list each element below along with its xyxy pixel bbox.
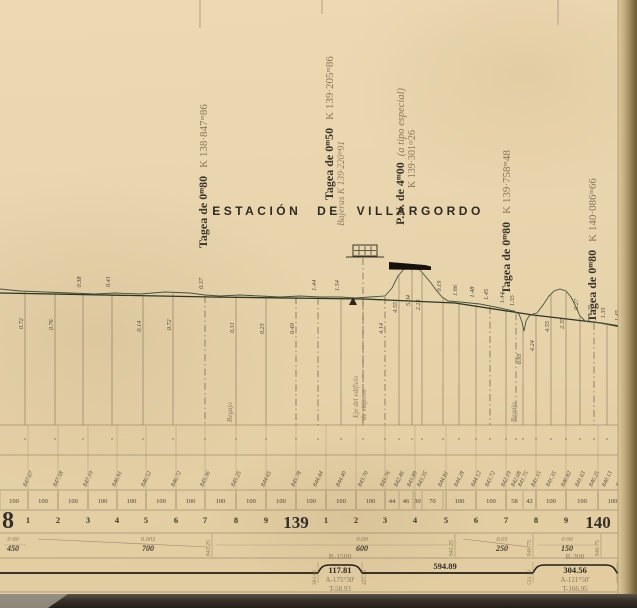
hectometer-number: 9 [264, 515, 268, 525]
hectometer-number: 7 [504, 515, 509, 525]
survey-dot [550, 438, 552, 440]
kilometer-number: 139 [283, 513, 309, 532]
hectometer-number: 2 [354, 515, 358, 525]
ordinate-value: 0.38 [76, 276, 83, 288]
ordinate-value: 0.41 [105, 276, 112, 287]
elevation-value: 847.58 [52, 470, 66, 488]
survey-dot [265, 438, 267, 440]
ordinate-value: 1.54 [334, 280, 341, 291]
elevation-value: 844.44 [312, 470, 326, 488]
scanned-profile-sheet: 0.720.760.380.410.140.720.370.310.250.40… [0, 0, 637, 608]
survey-dot [317, 438, 319, 440]
paper-edge-right [618, 0, 637, 608]
ordinate-value: 4.55 [392, 302, 399, 313]
kilometer-number: 8 [2, 508, 14, 534]
survey-dot [593, 438, 595, 440]
elevation-value: 844.81 [437, 470, 451, 488]
station-axis-label: Eje del edificio [352, 375, 360, 419]
survey-dot [24, 438, 26, 440]
hectometer-number: 8 [234, 515, 238, 525]
gradient-rate-value: 0.00 [356, 536, 368, 543]
hectometer-number: 3 [86, 515, 90, 525]
elevation-value: 843.70 [357, 470, 371, 488]
survey-dot [515, 438, 517, 440]
distance-value: 100 [9, 498, 19, 505]
regajo-label: Regajo [226, 402, 234, 423]
survey-dot [82, 438, 84, 440]
distance-value: 100 [455, 498, 465, 505]
gradient-rate-value: 0 00 [7, 536, 19, 543]
station-title: ESTACIÓN DE VILLARGORDO [212, 203, 484, 218]
ordinate-value: 4.14 [378, 323, 385, 334]
survey-dot [421, 438, 423, 440]
survey-dot [398, 438, 400, 440]
ordinate-value: 0.14 [136, 321, 143, 332]
elevation-value: 844.65 [260, 470, 274, 488]
tagea-label: Tagea de 0ᵐ50K 139·205ᵐ86 [322, 56, 336, 200]
tangent-pk-value: 533.12 [527, 570, 533, 585]
elevation-value: 845.78 [290, 470, 304, 488]
distance-value: 100 [577, 498, 587, 505]
gradient-break-value: 843.25 [449, 540, 455, 556]
elevation-value: 843.76 [379, 470, 393, 488]
distance-value: 42 [526, 498, 533, 505]
gradient-slope-line [38, 539, 208, 547]
elevation-value: 844.40 [335, 470, 349, 488]
regajo-label: Regajo [510, 402, 518, 423]
hectometer-number: 4 [115, 515, 120, 525]
survey-dot [579, 438, 581, 440]
distance-value: 100 [186, 498, 196, 505]
distance-value: 70 [429, 498, 436, 505]
survey-dot [505, 438, 507, 440]
hectometer-number: 3 [383, 515, 387, 525]
curve-angle-label: A-175°30' [326, 576, 355, 584]
elevation-value: 841.15 [530, 470, 544, 488]
distance-value: 100 [38, 498, 48, 505]
longitudinal-profile-drawing: 0.720.760.380.410.140.720.370.310.250.40… [0, 0, 637, 608]
survey-dot [384, 438, 386, 440]
ordinate-value: 4.55 [544, 321, 551, 332]
elevation-value: 846.91 [111, 470, 125, 488]
curve-angle-label: A-121°50' [561, 576, 590, 584]
distance-value: 100 [306, 498, 316, 505]
distance-value: 100 [127, 498, 137, 505]
structure-bar [389, 262, 431, 270]
ordinate-value: 1.48 [469, 286, 476, 298]
ordinate-value: 2.35 [559, 318, 566, 329]
ordinate-value: 0.37 [198, 277, 205, 289]
elevation-value: 847.07 [22, 469, 36, 488]
elevation-value: 840.82 [560, 470, 574, 488]
curve-radius-label: R-1500 [329, 552, 352, 561]
curve-length-label: 304.56 [563, 565, 586, 575]
elevation-value: 844.28 [453, 470, 467, 488]
elevation-value: 846.72 [170, 470, 184, 488]
terrain-line [0, 268, 637, 331]
elevation-value: 846.52 [140, 470, 154, 488]
elevation-value: 841.63 [574, 470, 588, 488]
tagea-label: Tagea de 0ᵐ80K 140·086ᵐ66 [585, 178, 599, 322]
gradient-rate-value: 0.003 [141, 536, 156, 543]
tangent-pk-value: 421.43 [362, 570, 368, 585]
structure-note-label: Bajeras K 139·220ᵐ91 [337, 141, 347, 226]
hectometer-number: 4 [413, 515, 418, 525]
ordinate-value: 1.66 [452, 284, 459, 296]
curve-tangent-label: T-166.95 [562, 585, 588, 593]
ordinate-value: 0.76 [48, 319, 55, 331]
elevation-value: 845.25 [230, 470, 244, 488]
distance-value: 100 [366, 498, 376, 505]
elevation-value: 842.46 [393, 470, 407, 488]
bottom-edge-strip [0, 594, 637, 608]
gradient-length-value: 700 [142, 544, 154, 553]
survey-dot [458, 438, 460, 440]
hectometer-number: 5 [444, 515, 448, 525]
tangent-pk-value: 303.62 [312, 570, 318, 585]
curve-tangent-label: T-58.93 [329, 585, 351, 593]
elevation-value: 847.19 [82, 470, 96, 488]
elevation-value: 840.25 [588, 470, 602, 488]
survey-dot [235, 438, 237, 440]
ordinate-value: 1.44 [311, 280, 318, 291]
hectometer-number: 2 [56, 515, 60, 525]
distance-value: 100 [98, 498, 108, 505]
distance-value: 100 [276, 498, 286, 505]
pn-label: P.N. de 4ᵐ00(a tipo especial) [393, 87, 407, 225]
ordinate-value: 1.45 [483, 289, 490, 300]
distance-value: 58 [511, 498, 518, 505]
distance-value: 100 [546, 498, 556, 505]
hectometer-number: 6 [474, 515, 478, 525]
distance-value: 100 [68, 498, 78, 505]
survey-dot [535, 438, 537, 440]
grade-line [0, 293, 637, 329]
survey-dot [172, 438, 174, 440]
ordinate-value: 0.19 [436, 280, 443, 292]
survey-dot [295, 438, 297, 440]
elevation-value: 840.13 [601, 470, 615, 488]
gradient-break-value: 840.75 [527, 540, 533, 556]
hectometer-number: 9 [564, 515, 568, 525]
distance-value: 30 [414, 498, 421, 505]
ordinate-value: 0.95 [516, 353, 523, 364]
curve-length-label: 117.81 [329, 565, 352, 575]
survey-dot [54, 438, 56, 440]
survey-dot [411, 438, 413, 440]
gradient-rate-value: 0 00 [561, 536, 573, 543]
elevation-value: 844.12 [470, 470, 484, 488]
elevation-value: 845.36 [199, 470, 213, 488]
hectometer-number: 5 [144, 515, 148, 525]
ordinate-value: 1.35 [509, 295, 516, 306]
hectometer-number: 1 [26, 515, 30, 525]
ordinate-value: 0.40 [289, 322, 296, 334]
gradient-length-value: 600 [356, 544, 368, 553]
station-axis-label: de viajeros [360, 389, 368, 420]
straight-length-label: 594.89 [433, 561, 456, 571]
gradient-length-value: 450 [6, 544, 19, 553]
hectometer-number: 1 [324, 515, 328, 525]
survey-dot [111, 438, 113, 440]
elevation-value: 841.35 [545, 470, 559, 488]
survey-dot [204, 438, 206, 440]
gradient-length-value: 250 [495, 544, 508, 553]
ordinate-value: 0.25 [259, 323, 266, 334]
survey-dot [142, 438, 144, 440]
survey-dot [340, 438, 342, 440]
gradient-break-value: 843.25 [206, 540, 212, 556]
tagea-label: Tagea de 0ᵐ80K 138·847ᵐ86 [196, 104, 210, 248]
distance-value: 100 [156, 498, 166, 505]
ordinate-value: 1.35 [600, 307, 607, 318]
tagea-label: Tagea de 0ᵐ80K 139·758ᵐ48 [499, 150, 513, 294]
pn-km-label: K 139·301ᵐ26 [407, 130, 418, 188]
ordinate-value: 4.24 [529, 340, 536, 351]
distance-value: 44 [389, 498, 396, 505]
distance-value: 100 [608, 498, 618, 505]
survey-dot [442, 438, 444, 440]
curve-radius-label: R-300 [566, 552, 585, 561]
hectometer-number: 8 [534, 515, 538, 525]
gradient-break-value: 840.75 [595, 540, 601, 556]
distance-value: 46 [403, 498, 410, 505]
hectometer-number: 6 [174, 515, 178, 525]
hectometer-number: 7 [203, 515, 208, 525]
ordinate-value: 0.72 [166, 318, 173, 330]
gradient-rate-value: 0.01 [496, 536, 507, 543]
survey-dot [475, 438, 477, 440]
survey-dot [489, 438, 491, 440]
survey-dot [522, 438, 524, 440]
distance-value: 100 [216, 498, 226, 505]
distance-value: 100 [246, 498, 256, 505]
kilometer-number: 140 [585, 513, 611, 532]
distance-value: 100 [336, 498, 346, 505]
distance-value: 100 [486, 498, 496, 505]
ordinate-value: 0.31 [229, 322, 236, 333]
ordinate-value: 0.72 [18, 317, 25, 329]
survey-dot [606, 438, 608, 440]
survey-dot [362, 438, 364, 440]
elevation-value: 843.72 [484, 470, 498, 488]
survey-dot [565, 438, 567, 440]
